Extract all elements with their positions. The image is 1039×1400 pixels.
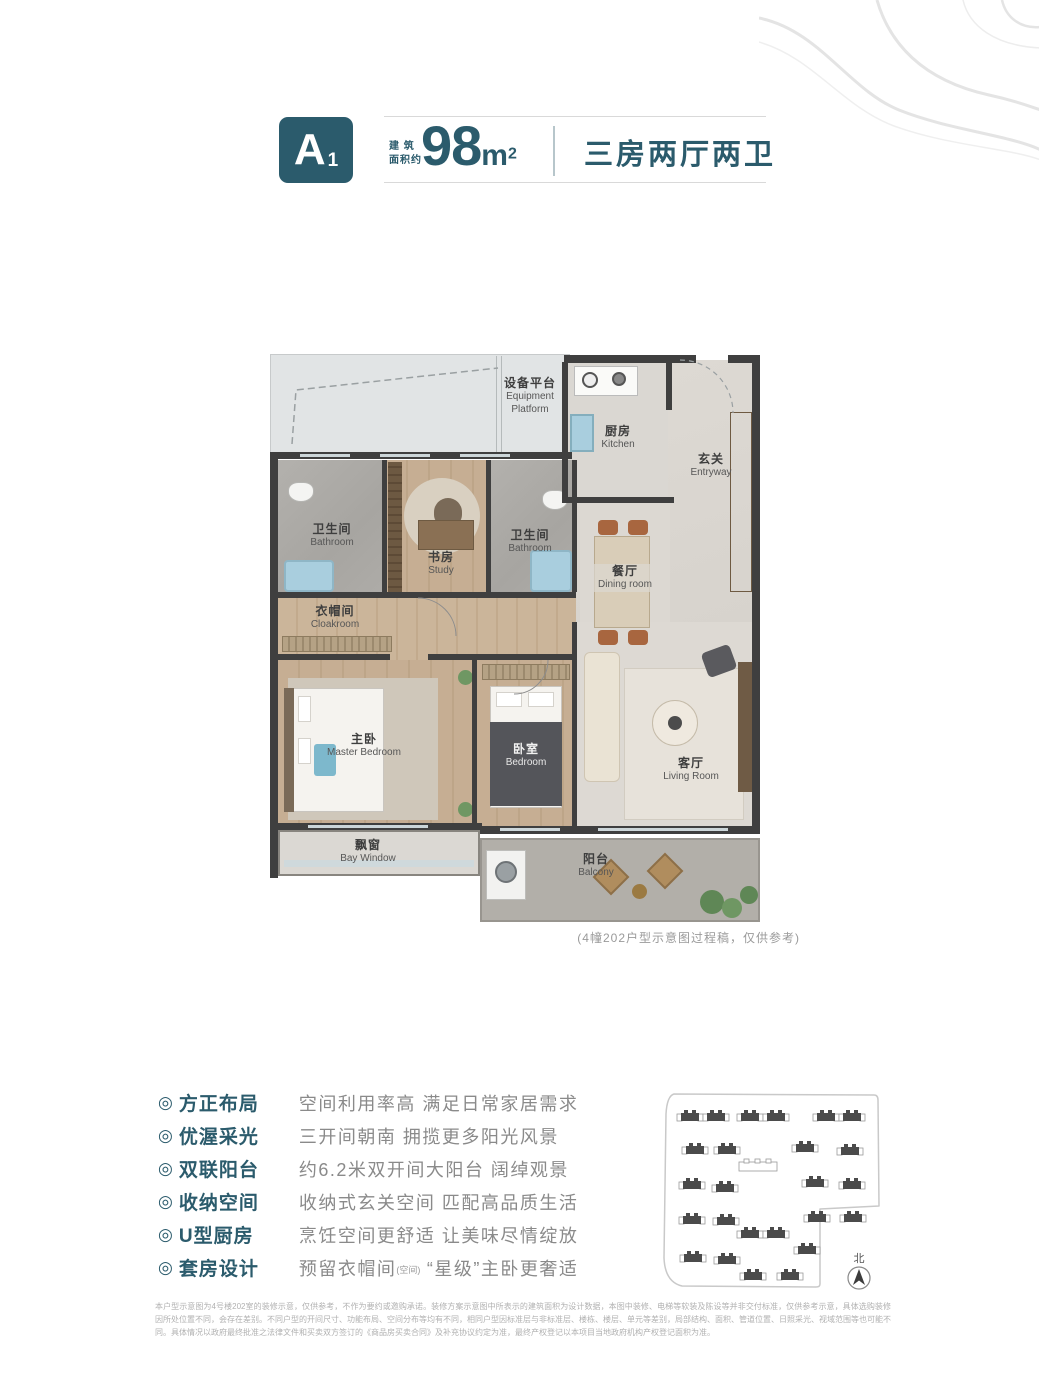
label-kitchen: 厨房 Kitchen [583,424,653,452]
flyer-page: A 1 建 筑 面积约 98m2 三房两厅两卫 [0,0,1039,1400]
feature-item: ◎ 收纳空间 收纳式玄关空间 匹配高品质生活 [158,1191,608,1212]
area-prefix-line2: 面积约 [389,155,422,166]
area-prefix-line1: 建 筑 [389,141,415,152]
site-plan-map: 北 [652,1086,900,1312]
unit-type-number: 1 [328,150,339,172]
bullet-icon: ◎ [158,1160,173,1177]
bullet-icon: ◎ [158,1127,173,1144]
label-dining: 餐厅 Dining room [586,564,664,592]
north-arrow-icon [853,1269,865,1285]
disclaimer-text: 本户型示意图为4号楼202室的装修示意，仅供参考，不作为要约或邀购承诺。装修方案… [155,1301,891,1339]
svg-text:北: 北 [854,1252,865,1265]
area-value: 98m2 [421,113,517,178]
bullet-icon: ◎ [158,1193,173,1210]
floor-plan: 设备平台 Equipment Platform 厨房 Kitchen 玄关 En… [268,352,776,927]
bullet-icon: ◎ [158,1259,173,1276]
label-master-bedroom: 主卧 Master Bedroom [304,732,424,760]
bullet-icon: ◎ [158,1094,173,1111]
area-unit: m [481,139,508,172]
feature-item: ◎ 方正布局 空间利用率高 满足日常家居需求 [158,1092,608,1113]
north-indicator: 北 [848,1252,870,1289]
unit-type-badge: A 1 [279,117,353,183]
label-entryway: 玄关 Entryway [668,452,754,480]
area-number: 98 [421,114,481,177]
feature-list: ◎ 方正布局 空间利用率高 满足日常家居需求 ◎ 优渥采光 三开间朝南 拥揽更多… [158,1092,608,1290]
label-bedroom: 卧室 Bedroom [490,742,562,770]
label-bathroom-mid: 卫生间 Bathroom [494,528,566,556]
label-living-room: 客厅 Living Room [636,756,746,784]
label-cloakroom: 衣帽间 Cloakroom [292,604,378,632]
plan-caption: (4幢202户型示意图过程稿，仅供参考) [470,929,800,946]
area-prefix-label: 建 筑 面积约 [389,140,422,168]
label-study: 书房 Study [406,550,476,578]
feature-item: ◎ 双联阳台 约6.2米双开间大阳台 阔绰观景 [158,1158,608,1179]
contour-decoration [759,0,1039,170]
label-balcony: 阳台 Balcony [556,852,636,880]
header-bottom-rule [384,182,766,183]
label-equipment-platform: 设备平台 Equipment Platform [493,376,567,416]
area-unit-exponent: 2 [508,146,517,163]
feature-item: ◎ 优渥采光 三开间朝南 拥揽更多阳光风景 [158,1125,608,1146]
layout-title: 三房两厅两卫 [584,131,776,173]
bullet-icon: ◎ [158,1226,173,1243]
header-divider [553,126,555,176]
label-bay-window: 飘窗 Bay Window [316,838,420,866]
unit-type-letter: A [294,128,326,172]
site-plan: 北 [652,1086,900,1317]
feature-item: ◎ 套房设计 预留衣帽间(空间) “星级”主卧更奢适 [158,1257,608,1278]
label-bathroom-left: 卫生间 Bathroom [296,522,368,550]
feature-item: ◎ U型厨房 烹饪空间更舒适 让美味尽情绽放 [158,1224,608,1245]
